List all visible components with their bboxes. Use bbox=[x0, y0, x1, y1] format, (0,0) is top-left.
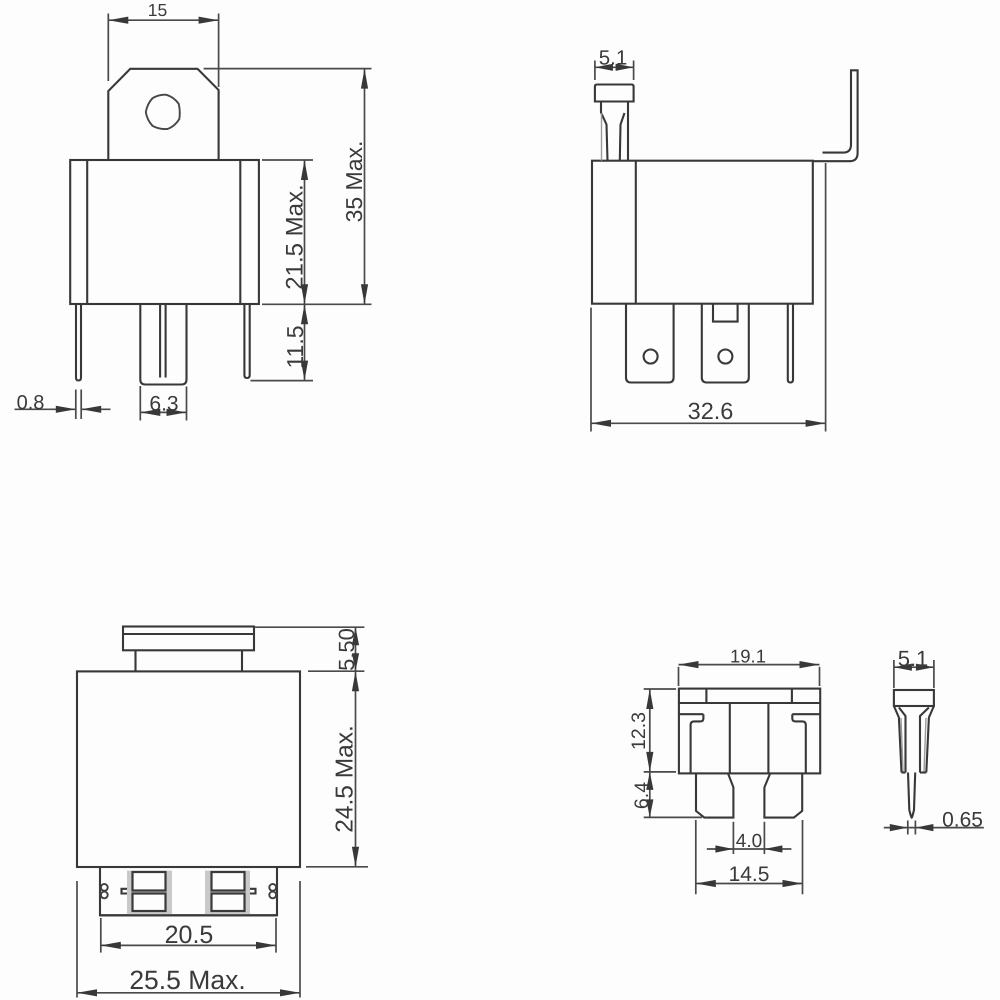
svg-text:5.1: 5.1 bbox=[898, 646, 929, 671]
svg-text:0.65: 0.65 bbox=[942, 809, 983, 832]
svg-text:6.4: 6.4 bbox=[631, 782, 653, 809]
svg-text:35 Max.: 35 Max. bbox=[341, 141, 367, 223]
svg-text:4.0: 4.0 bbox=[736, 831, 762, 852]
svg-text:5.50: 5.50 bbox=[334, 628, 359, 671]
svg-text:6.3: 6.3 bbox=[149, 393, 178, 416]
svg-text:25.5 Max.: 25.5 Max. bbox=[129, 965, 245, 995]
svg-text:15: 15 bbox=[148, 0, 167, 20]
svg-text:19.1: 19.1 bbox=[730, 646, 766, 667]
svg-text:5.1: 5.1 bbox=[599, 47, 628, 70]
svg-text:0.8: 0.8 bbox=[17, 392, 45, 414]
svg-text:11.5: 11.5 bbox=[282, 325, 308, 368]
svg-text:32.6: 32.6 bbox=[688, 398, 734, 424]
svg-text:20.5: 20.5 bbox=[165, 921, 214, 949]
svg-text:14.5: 14.5 bbox=[729, 863, 770, 886]
svg-text:21.5 Max.: 21.5 Max. bbox=[282, 184, 309, 289]
svg-text:12.3: 12.3 bbox=[628, 712, 650, 750]
svg-text:24.5 Max.: 24.5 Max. bbox=[332, 725, 359, 833]
